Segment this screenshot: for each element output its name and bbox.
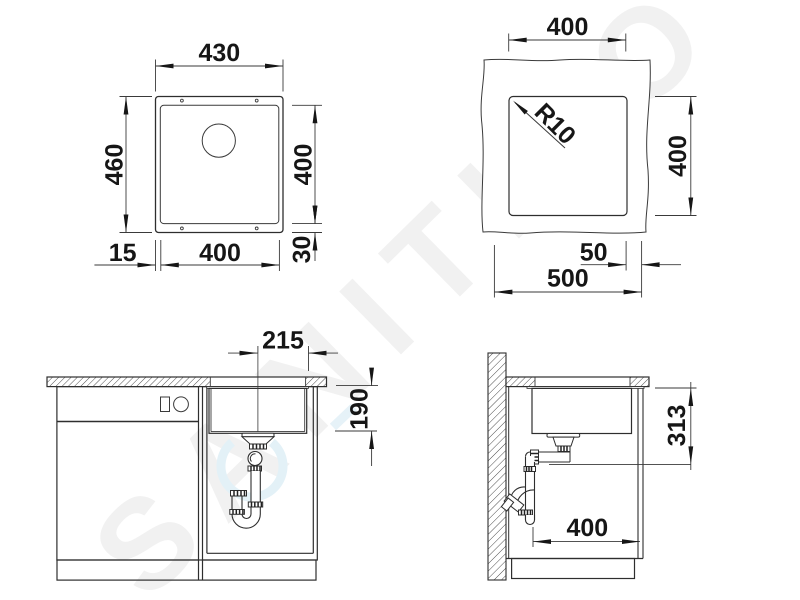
svg-text:400: 400 [664, 135, 692, 177]
svg-text:15: 15 [109, 239, 137, 267]
svg-text:50: 50 [580, 239, 608, 267]
svg-text:400: 400 [547, 13, 589, 41]
svg-text:190: 190 [345, 388, 373, 430]
svg-text:430: 430 [198, 39, 240, 67]
svg-text:313: 313 [663, 405, 691, 447]
svg-text:400: 400 [290, 144, 318, 186]
svg-text:500: 500 [547, 265, 589, 293]
svg-text:400: 400 [199, 239, 241, 267]
svg-text:460: 460 [101, 144, 129, 186]
svg-text:400: 400 [566, 514, 608, 542]
svg-text:215: 215 [262, 327, 304, 355]
svg-text:30: 30 [288, 236, 316, 264]
